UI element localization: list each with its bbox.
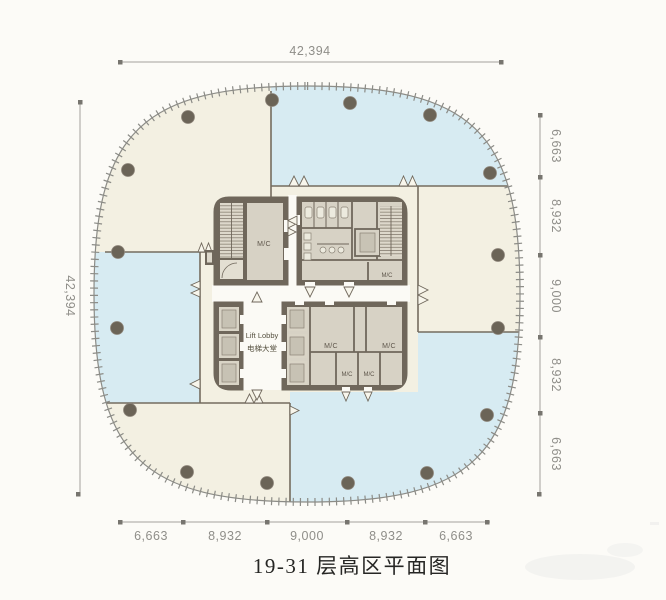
column [492,249,505,262]
urinal [304,233,311,240]
column [261,477,274,490]
core-upper-right-block: M/C [288,197,407,297]
dimension-label: 8,932 [208,529,242,543]
machine-room-label: M/C [257,241,271,248]
dimension-label: 8,932 [549,358,563,392]
column [421,467,434,480]
machine-room-label: M/C [382,343,396,350]
dimension-label: 9,000 [549,279,563,313]
dimension-label: 6,663 [439,529,473,543]
urinal [304,253,311,260]
sink [338,247,344,253]
lift-lobby-label-en: Lift Lobby [246,331,279,340]
machine-room-label: M/C [364,372,376,378]
column [481,409,494,422]
wc-fixture [341,207,348,218]
dimension-label: 8,932 [369,529,403,543]
dimension-bottom: 6,663 8,932 9,000 8,932 6,663 [118,520,490,543]
dimension-top: 42,394 [118,44,504,65]
machine-room-label: M/C [324,343,338,350]
dimension-label: 42,394 [289,44,330,58]
wc-fixture [317,207,324,218]
dimension-label: 6,663 [549,437,563,471]
column [182,111,195,124]
machine-room-label: M/C [382,273,394,279]
column [181,466,194,479]
column [111,322,124,335]
wc-fixture [305,207,312,218]
floorplan-drawing: M/C [0,0,666,600]
dimension-right: 6,663 8,932 9,000 8,932 6,663 [537,113,563,497]
dimension-label: 6,663 [134,529,168,543]
column [122,164,135,177]
dimension-label: 6,663 [549,129,563,163]
plan-title: 19-31 层高区平面图 [253,554,451,578]
core-upper-left-block: M/C [205,197,296,285]
floorplan-canvas: M/C [0,0,666,600]
column [112,246,125,259]
core-lower-right-block: M/C M/C M/C M/C [281,300,407,401]
corridor [288,195,297,285]
scan-artifact [525,522,659,580]
column [484,167,497,180]
dimension-label: 9,000 [290,529,324,543]
dimension-label: 42,394 [63,275,77,316]
wc-fixture [329,207,336,218]
zone-left-blue [88,252,200,403]
dimension-label: 8,932 [549,199,563,233]
machine-room-label: M/C [342,372,354,378]
urinal [304,243,311,250]
column [424,109,437,122]
dimension-left: 42,394 [63,100,83,497]
column [342,477,355,490]
column [124,404,137,417]
lift-lobby-label-zh: 电梯大堂 [247,343,277,353]
core-elevator-bank-left [214,302,244,390]
column [344,97,357,110]
column [492,322,505,335]
sink [329,247,335,253]
column [266,94,279,107]
sink [320,247,326,253]
